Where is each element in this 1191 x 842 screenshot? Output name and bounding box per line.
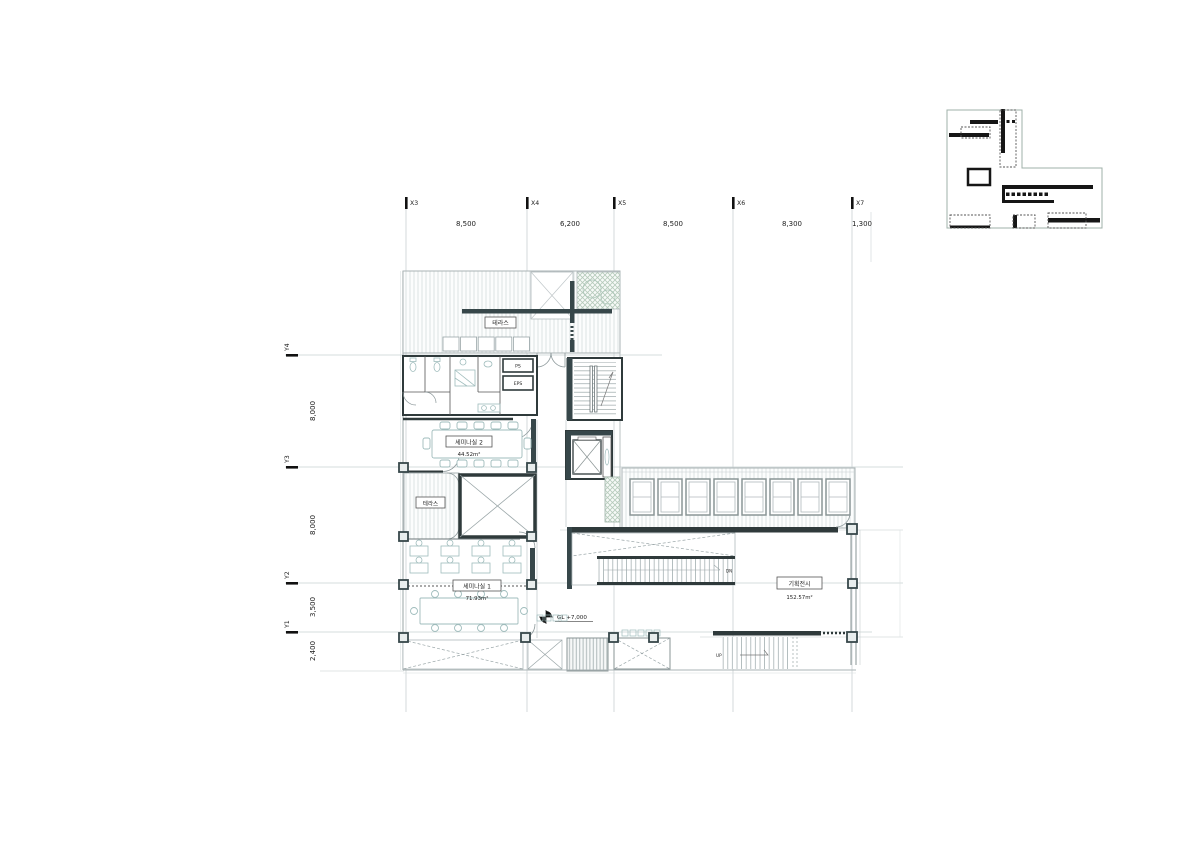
room-area-exhibition: 152.57m²	[786, 594, 812, 601]
stair-dn-label: DN	[726, 569, 732, 574]
dim-y3-y2: 8,000	[309, 515, 317, 535]
building: 테라스	[399, 271, 860, 673]
shaft-label-eps: EPS	[514, 381, 523, 387]
grid-label-x4: X4	[531, 200, 539, 207]
grid-axis-x7: X7	[851, 197, 864, 209]
grid-label-y4: Y4	[284, 343, 291, 352]
level-text: GL +7,000	[557, 615, 587, 621]
room-label-terrace-left: 테라스	[423, 499, 438, 507]
room-area-seminar-1: 71.93m²	[466, 595, 489, 602]
dim-y4-y3: 8,000	[309, 401, 317, 421]
grid-label-y1: Y1	[284, 620, 291, 629]
shaft-label-ps: PS	[515, 364, 521, 370]
dim-x7-end: 1,300	[852, 220, 872, 228]
dim-x4-x5: 6,200	[560, 220, 580, 228]
grid-label-y2: Y2	[284, 571, 291, 580]
dim-y2-y1: 3,500	[309, 597, 317, 617]
grid-label-y3: Y3	[284, 455, 291, 464]
seminar-room-1: 세미나실 1 71.93m²	[403, 532, 535, 640]
terrace-bench-wall	[462, 309, 612, 314]
terrace-left: 테라스	[404, 473, 459, 539]
grid-axis-y1: Y1	[284, 620, 298, 633]
planter-row	[443, 337, 529, 351]
floor-plan-sheet: X3 X4 X5 X6 X7 8,500 6,200 8,500 8,300 1…	[0, 0, 1191, 842]
level-marker: GL +7,000	[539, 610, 593, 624]
roof-terrace: 테라스	[403, 271, 620, 367]
toilet-block: PS EPS	[403, 356, 537, 415]
dim-x3-x4: 8,500	[456, 220, 476, 228]
grid-label-x6: X6	[737, 200, 745, 207]
room-label-exhibition: 기획전시	[788, 580, 810, 588]
grid-axis-y3: Y3	[284, 455, 298, 468]
key-plan-core	[968, 169, 990, 185]
grid-axis-x3: X3	[405, 197, 418, 209]
stair-up-label: UP	[716, 653, 722, 658]
room-label-seminar-2: 세미나실 2	[455, 438, 483, 446]
grid-label-x5: X5	[618, 200, 626, 207]
bench-row	[537, 615, 660, 636]
room-area-seminar-2: 44.52m²	[458, 451, 481, 458]
floor-plan-drawing: X3 X4 X5 X6 X7 8,500 6,200 8,500 8,300 1…	[0, 0, 1191, 842]
grid-axis-y4: Y4	[284, 343, 298, 356]
room-label-seminar-1: 세미나실 1	[463, 582, 491, 590]
dim-x5-x6: 8,500	[663, 220, 683, 228]
grid-axis-x6: X6	[732, 197, 745, 209]
gallery-stair-void: DN	[567, 527, 735, 589]
dim-x6-x7: 8,300	[782, 220, 802, 228]
void-opening	[460, 475, 535, 537]
elevator	[566, 431, 612, 479]
grid-axis-y2: Y2	[284, 571, 298, 584]
seminar-room-2: 세미나실 2 44.52m²	[403, 419, 536, 472]
desk-cluster	[410, 540, 521, 573]
stair-core-top	[567, 358, 623, 420]
dim-y1-end: 2,400	[309, 641, 317, 661]
shaft-ps: PS	[503, 359, 533, 372]
shaft-eps: EPS	[503, 376, 533, 390]
grid-axis-x4: X4	[526, 197, 539, 209]
grid-label-x3: X3	[410, 200, 418, 207]
room-label-terrace-top: 테라스	[492, 319, 509, 327]
grid-label-x7: X7	[856, 200, 864, 207]
grid-axis-x5: X5	[613, 197, 626, 209]
key-plan	[947, 109, 1102, 228]
